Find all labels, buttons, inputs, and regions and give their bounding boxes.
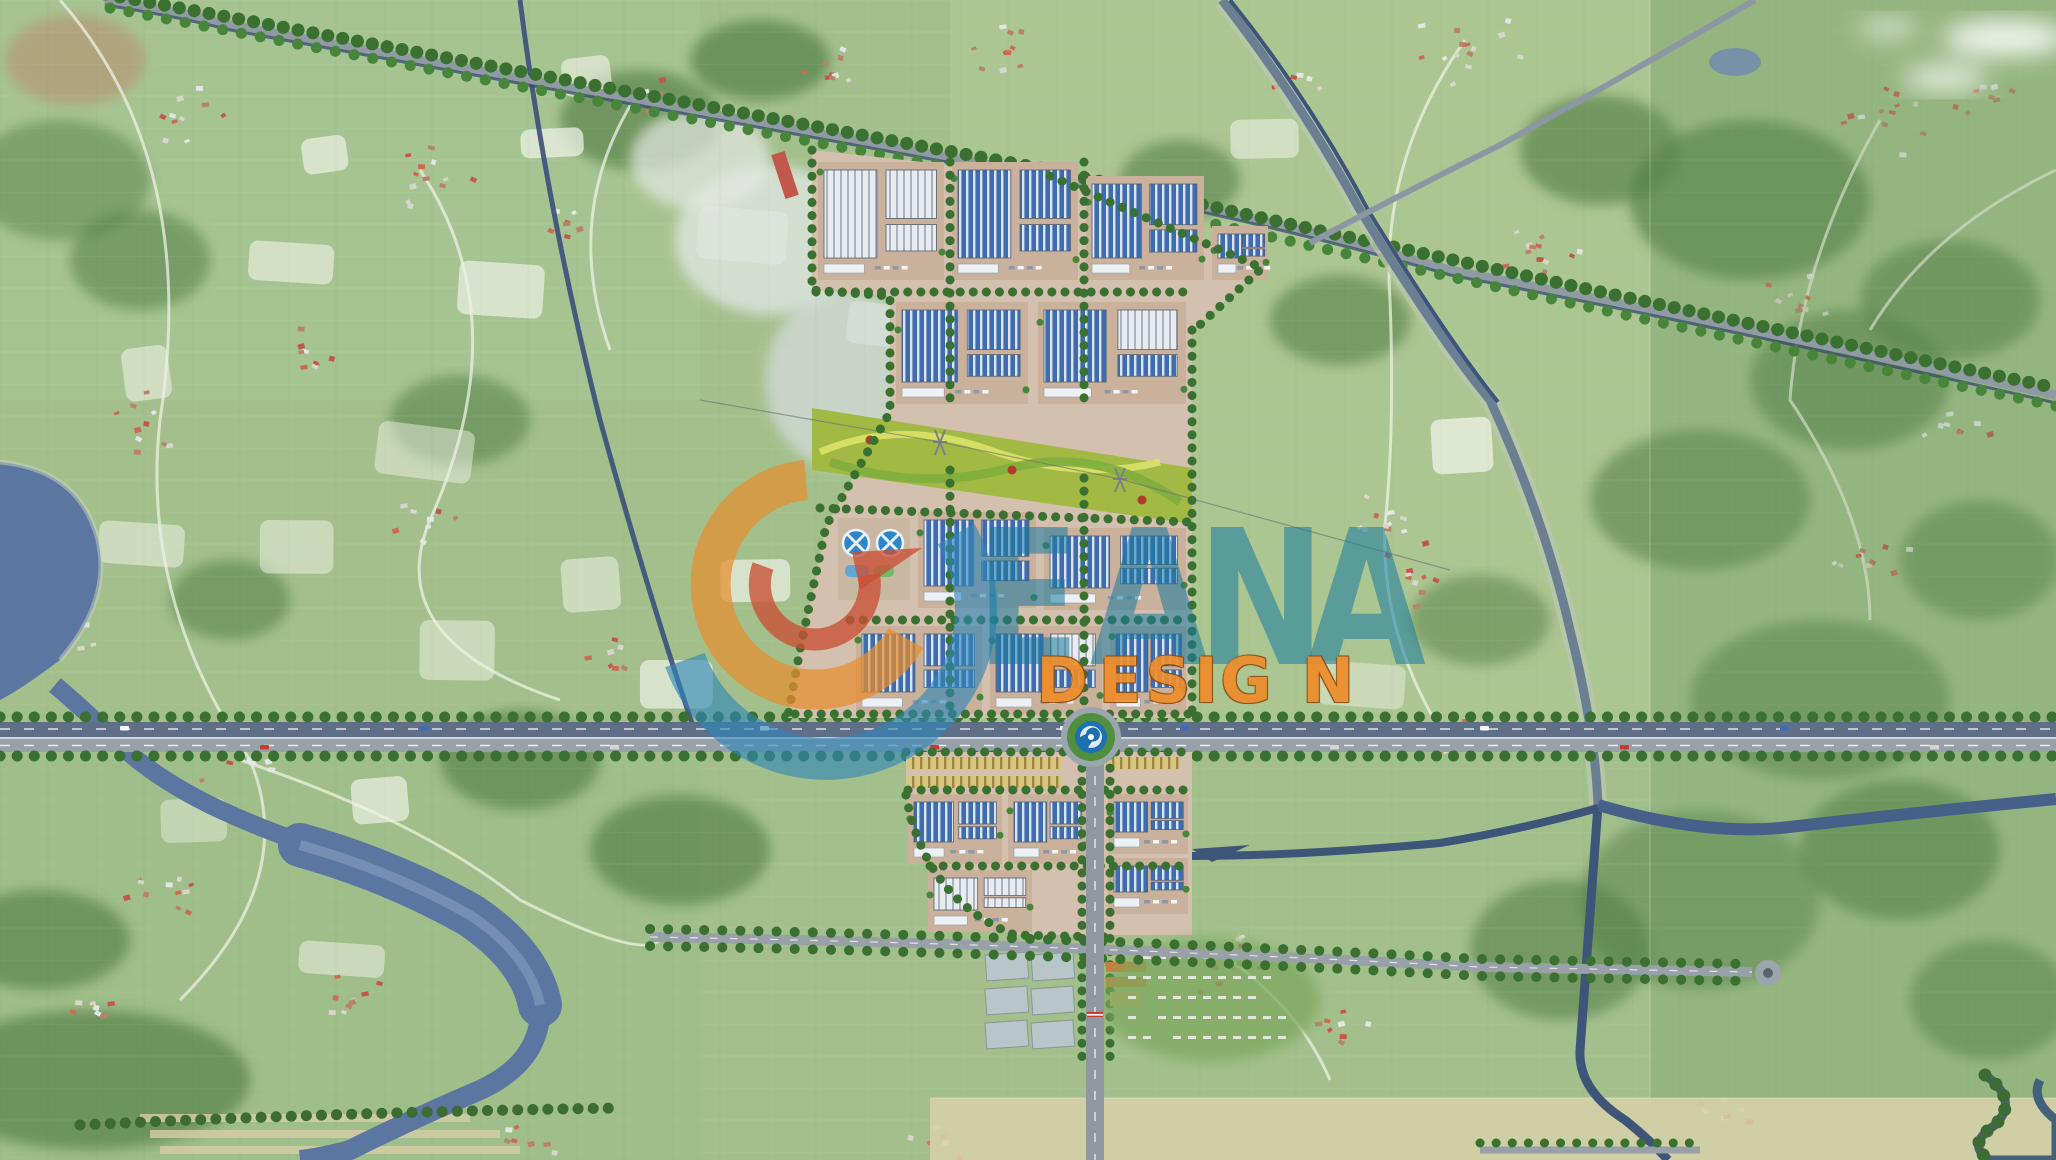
parked-car [1153,840,1159,844]
nursery-plot [1233,996,1241,999]
tree [917,529,924,536]
nursery-plot [1203,976,1211,979]
parked-car [1144,700,1150,704]
parked-car [968,850,974,854]
highway-roundabout [1061,707,1121,767]
factory-lot [1043,528,1188,610]
factory-lot [1007,794,1088,864]
factory-roof [1116,634,1148,692]
parked-car [950,850,956,854]
factory-lot [1109,626,1188,714]
tree [1263,259,1270,266]
parked-car [1049,700,1055,704]
tree [1183,830,1190,837]
house [1419,590,1426,595]
factory-roof [959,827,997,839]
factory-roof [1121,536,1178,565]
admin-building [1116,698,1140,707]
nursery-plot [1188,976,1196,979]
tree [1181,582,1188,589]
existing-warehouse [985,986,1029,1015]
factory-lot [1037,302,1188,404]
factory-roof [1114,802,1148,832]
parked-car [1123,390,1129,394]
tree [1043,542,1050,549]
house [329,1010,336,1015]
nursery-plot [1173,976,1181,979]
aerial-map-canvas [0,0,2056,1160]
parked-car [1166,266,1172,270]
tree [1027,904,1034,911]
parked-car [1132,390,1138,394]
nursery-plot [1203,1036,1211,1039]
parked-car [902,266,908,270]
admin-building [824,264,864,273]
nursery-plot [1248,1016,1256,1019]
nursery-plot [1218,1016,1226,1019]
tree [997,832,1004,839]
parked-car [1002,918,1008,922]
nursery-plot [1188,1016,1196,1019]
tree [1023,386,1030,393]
factory-roof [1151,634,1181,666]
parked-car [1009,266,1015,270]
nursery-plot [1263,1036,1271,1039]
factory-roof [1118,355,1177,377]
tree [927,891,934,898]
house [418,164,425,169]
vehicle [1780,726,1789,731]
tree [977,694,984,701]
existing-warehouse [1031,986,1075,1015]
nursery-plot [1233,976,1241,979]
parked-car [1153,900,1159,904]
house [1536,257,1543,262]
parked-car [1162,900,1168,904]
house [505,1127,512,1132]
tree [1181,686,1188,693]
admin-building [1218,264,1236,273]
parked-car [1067,700,1073,704]
house [298,326,305,331]
nursery-plot [1188,1036,1196,1039]
parked-car [1139,266,1145,270]
house [196,86,203,91]
existing-warehouse [985,1020,1029,1049]
vehicle [120,726,129,731]
house [612,666,619,671]
factory-roof [1050,802,1081,824]
factory-roof [1050,827,1081,839]
nursery-plot [1143,956,1151,959]
parked-car [1027,266,1033,270]
parked-car [959,850,965,854]
factory-roof [1121,568,1178,584]
nursery-plot [1263,1016,1271,1019]
vehicle [1930,745,1939,750]
house [134,450,141,455]
nursery-plot [1278,1016,1286,1019]
parked-car [982,390,988,394]
nursery-plot [1218,976,1226,979]
parked-car [1237,266,1243,270]
factory-roof [1050,634,1095,666]
admin-building [996,698,1032,707]
house [268,767,275,772]
house [1454,28,1460,34]
pond [1709,48,1761,76]
tree [1199,256,1206,263]
nursery-plot [1278,1036,1286,1039]
vehicle [1180,726,1189,731]
factory-roof [886,170,936,218]
vehicle [1480,726,1489,731]
factory-roof [1014,802,1047,842]
factory-roof [1151,670,1181,687]
factory-roof [1114,866,1148,892]
factory-lot [817,162,946,280]
nursery-plot [1218,996,1226,999]
factory-roof [1242,249,1264,256]
parked-car [1148,266,1154,270]
factory-roof [1242,234,1264,247]
nursery-plot [1128,996,1136,999]
nursery-plot [1128,1016,1136,1019]
vehicle [610,745,619,750]
parked-car [1036,266,1042,270]
vehicle [260,745,269,750]
parked-car [964,390,970,394]
admin-building [1050,594,1095,603]
nursery-plot [1158,976,1166,979]
nursery-plot [1248,976,1256,979]
vehicle [420,726,429,731]
parked-car [1171,840,1177,844]
admin-building [1092,264,1130,273]
factory-roof [959,802,997,824]
factory-roof [1050,670,1095,687]
admin-building [958,264,998,273]
parked-car [1264,266,1270,270]
nursery-plot [1173,1036,1181,1039]
nursery-plot [1158,996,1166,999]
factory-roof [958,170,1011,258]
parked-car [993,918,999,922]
factory-lot [895,302,1030,404]
parked-car [1108,596,1114,600]
parked-car [1144,900,1150,904]
vehicle [1330,745,1339,750]
vehicle [1620,745,1629,750]
factory-roof [886,225,936,251]
nursery-plot [1128,976,1136,979]
factory-lot [1107,794,1190,854]
nursery-plot [1248,996,1256,999]
nursery-plot [1173,1016,1181,1019]
parked-car [1058,700,1064,704]
parked-car [998,594,1004,598]
parked-car [1157,266,1163,270]
parked-car [977,850,983,854]
house [427,517,434,522]
factory-roof [984,878,1026,896]
parked-car [1171,900,1177,904]
tree [1073,256,1080,263]
parked-car [1052,850,1058,854]
nursery-plot [1188,996,1196,999]
tree [1109,633,1116,640]
tree [817,169,824,176]
factory-lot [907,794,1004,864]
parked-car [1135,596,1141,600]
factory-roof [984,898,1026,908]
parked-car [973,390,979,394]
parked-car [875,266,881,270]
house [166,882,173,887]
admin-building [1014,848,1039,857]
admin-building [934,916,967,925]
factory-roof [914,802,953,842]
tree [1031,594,1038,601]
tree [1183,886,1190,893]
factory-roof [1044,310,1106,382]
parked-car [1114,390,1120,394]
house [1296,73,1303,78]
factory-roof [1150,230,1197,252]
factory-roof [982,520,1029,556]
tree [939,249,946,256]
nursery-plot [1143,976,1151,979]
nursery-plot [1248,1036,1256,1039]
factory-roof [1151,821,1183,830]
tree [855,637,862,644]
factory-roof [967,310,1020,350]
nursery-plot [1203,996,1211,999]
parked-car [1105,390,1111,394]
parked-car [1153,700,1159,704]
tree [895,326,902,333]
admin-building [1114,838,1140,847]
factory-roof [1151,802,1183,819]
park-vertical-road [1086,750,1104,1160]
admin-building [902,388,944,397]
parked-car [1162,700,1168,704]
nursery-plot [1233,1036,1241,1039]
existing-warehouse [1031,1020,1075,1049]
admin-building [1114,898,1140,907]
nursery-plot [1233,1016,1241,1019]
parked-car [1043,850,1049,854]
parked-car [884,266,890,270]
parked-car [1061,850,1067,854]
house [1340,1034,1347,1039]
factory-roof [1151,882,1183,890]
nursery-plot [1203,1016,1211,1019]
factory-roof [1150,184,1197,225]
tree [1181,386,1188,393]
nursery-plot [1158,1016,1166,1019]
factory-roof [967,355,1020,377]
nursery-plot [1263,976,1271,979]
nursery-plot [1128,1036,1136,1039]
house [75,1000,82,1005]
nursery-plot [1143,1036,1151,1039]
tree [1037,319,1044,326]
parked-car [1126,596,1132,600]
admin-building [862,698,902,707]
parked-car [1117,596,1123,600]
factory-lot [1085,176,1206,280]
parked-car [893,266,899,270]
parked-car [955,390,961,394]
parked-car [1070,850,1076,854]
house [1004,50,1011,55]
factory-roof [824,170,877,258]
tree [1007,807,1014,814]
parked-car [1040,700,1046,704]
factory-roof [996,634,1043,692]
parked-car [1144,840,1150,844]
factory-roof [1020,225,1070,251]
nursery-plot [1218,1036,1226,1039]
parked-car [1162,840,1168,844]
factory-roof [1118,310,1177,350]
parked-car [1018,266,1024,270]
nursery-plot [1173,996,1181,999]
masterplan-aerial-screenshot: E A N A D E S I G N [0,0,2056,1160]
tree [1097,692,1104,699]
parked-car [1171,700,1177,704]
